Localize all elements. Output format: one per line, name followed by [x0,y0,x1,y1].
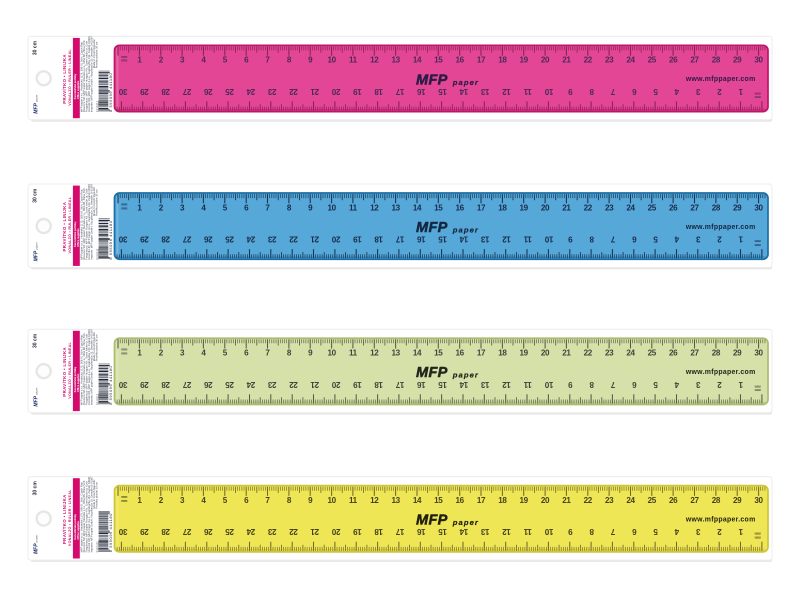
svg-text:20: 20 [331,380,340,389]
svg-text:30: 30 [118,87,127,96]
svg-text:VONALZÓ • RULER • LINEAL: VONALZÓ • RULER • LINEAL [67,196,72,253]
svg-text:27: 27 [690,56,699,65]
svg-text:30 cm: 30 cm [32,40,38,55]
svg-text:mm: mm [121,59,127,63]
svg-text:11: 11 [523,235,532,244]
svg-text:www.mfppaper.com: www.mfppaper.com [685,224,756,231]
svg-text:22: 22 [289,87,298,96]
svg-text:28: 28 [161,87,170,96]
svg-text:23: 23 [605,496,614,505]
svg-text:8 595096 441180: 8 595096 441180 [108,513,113,552]
svg-text:23: 23 [605,349,614,358]
svg-text:26: 26 [669,349,678,358]
svg-text:23: 23 [267,380,276,389]
svg-text:26: 26 [204,527,213,536]
svg-text:18: 18 [374,527,383,536]
svg-text:13: 13 [391,203,400,212]
svg-text:22: 22 [584,349,593,358]
svg-text:27: 27 [182,380,191,389]
svg-text:28: 28 [161,527,170,536]
svg-text:17: 17 [395,235,404,244]
svg-text:12: 12 [370,349,379,358]
svg-text:21: 21 [562,496,571,505]
svg-text:mm: mm [755,532,761,536]
svg-text:Office supplies: Office supplies [76,520,80,539]
svg-text:24: 24 [626,349,635,358]
svg-text:24: 24 [246,380,255,389]
svg-text:22: 22 [584,56,593,65]
svg-text:12: 12 [370,203,379,212]
svg-text:PRAVÍTKO • LINIJKA: PRAVÍTKO • LINIJKA [62,347,67,397]
svg-text:24: 24 [626,496,635,505]
svg-text:17: 17 [395,87,404,96]
svg-text:19: 19 [520,203,529,212]
svg-text:16: 16 [456,496,465,505]
svg-text:14: 14 [413,349,422,358]
svg-text:29: 29 [733,56,742,65]
svg-text:26: 26 [204,235,213,244]
svg-text:www.mfppaper.com: www.mfppaper.com [685,369,756,376]
svg-text:16: 16 [456,349,465,358]
svg-text:19: 19 [353,87,362,96]
svg-text:mm: mm [755,95,761,99]
svg-text:26: 26 [204,87,213,96]
svg-text:18: 18 [374,87,383,96]
svg-text:Pravítko ploché 30 cm: Pravítko ploché 30 cm [95,189,99,216]
svg-text:14: 14 [413,496,422,505]
svg-text:30: 30 [754,496,763,505]
svg-text:10: 10 [544,87,553,96]
svg-text:30 cm: 30 cm [32,333,38,348]
svg-text:16: 16 [417,235,426,244]
svg-text:24: 24 [246,235,255,244]
svg-text:16: 16 [417,87,426,96]
svg-text:mm: mm [121,352,127,356]
svg-text:Office supplies: Office supplies [76,373,80,392]
svg-text:18: 18 [498,56,507,65]
svg-text:18: 18 [498,349,507,358]
svg-text:15: 15 [438,527,447,536]
svg-text:25: 25 [225,235,234,244]
svg-text:mm: mm [755,388,761,392]
svg-text:25: 25 [225,380,234,389]
svg-text:19: 19 [520,349,529,358]
svg-text:20: 20 [541,56,550,65]
svg-text:13: 13 [480,527,489,536]
svg-text:mm: mm [121,499,127,503]
svg-text:paper: paper [452,78,479,87]
svg-text:29: 29 [733,349,742,358]
svg-text:23: 23 [267,527,276,536]
svg-text:17: 17 [395,380,404,389]
svg-text:12: 12 [502,87,511,96]
svg-text:25: 25 [648,203,657,212]
svg-text:10: 10 [327,349,336,358]
svg-text:13: 13 [391,349,400,358]
svg-text:mm: mm [121,206,127,210]
svg-text:8 595096 441180: 8 595096 441180 [108,220,113,259]
svg-text:19: 19 [520,496,529,505]
svg-text:PRAVÍTKO • LINIJKA: PRAVÍTKO • LINIJKA [62,494,67,544]
svg-text:17: 17 [477,203,486,212]
svg-text:10: 10 [544,380,553,389]
svg-text:16: 16 [456,203,465,212]
svg-text:24: 24 [246,87,255,96]
svg-text:10: 10 [327,203,336,212]
svg-text:Pravítko ploché 30 cm: Pravítko ploché 30 cm [95,41,99,68]
svg-text:30: 30 [754,56,763,65]
svg-text:22: 22 [584,496,593,505]
svg-text:14: 14 [459,380,468,389]
svg-text:30 cm: 30 cm [32,188,38,203]
svg-text:29: 29 [733,203,742,212]
svg-text:28: 28 [161,235,170,244]
svg-text:29: 29 [140,87,149,96]
svg-text:8 595096 441180: 8 595096 441180 [108,73,113,112]
svg-text:27: 27 [690,496,699,505]
svg-text:19: 19 [353,380,362,389]
svg-text:29: 29 [733,496,742,505]
svg-text:21: 21 [310,235,319,244]
svg-text:12: 12 [370,56,379,65]
svg-text:30: 30 [754,203,763,212]
svg-text:11: 11 [523,87,532,96]
svg-text:25: 25 [648,56,657,65]
svg-text:VONALZÓ • RULER • LINEAL: VONALZÓ • RULER • LINEAL [67,341,72,398]
svg-text:27: 27 [182,87,191,96]
svg-text:25: 25 [225,87,234,96]
svg-text:Office supplies: Office supplies [76,228,80,247]
svg-text:10: 10 [327,496,336,505]
svg-text:Pravítko ploché 30 cm: Pravítko ploché 30 cm [95,481,99,508]
svg-text:paper: paper [452,518,479,527]
svg-text:19: 19 [353,235,362,244]
svg-text:27: 27 [182,235,191,244]
svg-text:16: 16 [456,56,465,65]
svg-text:13: 13 [480,87,489,96]
svg-text:21: 21 [310,527,319,536]
svg-text:15: 15 [434,349,443,358]
svg-text:paper: paper [452,226,479,235]
svg-text:23: 23 [605,203,614,212]
svg-text:15: 15 [434,56,443,65]
svg-text:24: 24 [246,527,255,536]
svg-text:MFP: MFP [416,72,448,88]
svg-text:21: 21 [310,87,319,96]
svg-text:16: 16 [417,527,426,536]
svg-text:10: 10 [544,235,553,244]
svg-text:20: 20 [541,496,550,505]
svg-text:16: 16 [417,380,426,389]
svg-text:30: 30 [118,527,127,536]
svg-text:13: 13 [391,56,400,65]
svg-text:15: 15 [438,87,447,96]
svg-text:24: 24 [626,56,635,65]
svg-text:21: 21 [562,203,571,212]
svg-text:25: 25 [648,349,657,358]
svg-text:Pravítko ploché 30 cm: Pravítko ploché 30 cm [95,334,99,361]
svg-text:15: 15 [434,496,443,505]
svg-text:Office supplies: Office supplies [76,80,80,99]
svg-text:28: 28 [712,349,721,358]
svg-text:mm: mm [755,384,761,388]
svg-text:17: 17 [477,496,486,505]
svg-text:23: 23 [267,87,276,96]
svg-text:MFP: MFP [416,365,448,381]
svg-text:26: 26 [669,203,678,212]
svg-text:MFP: MFP [416,220,448,236]
svg-text:27: 27 [690,349,699,358]
svg-text:29: 29 [140,527,149,536]
svg-text:23: 23 [267,235,276,244]
svg-text:14: 14 [413,56,422,65]
svg-text:11: 11 [523,380,532,389]
svg-text:13: 13 [391,496,400,505]
svg-text:25: 25 [225,527,234,536]
svg-text:11: 11 [349,496,358,505]
svg-text:PRAVÍTKO • LINIJKA: PRAVÍTKO • LINIJKA [62,201,67,251]
svg-text:28: 28 [161,380,170,389]
svg-text:22: 22 [289,235,298,244]
svg-text:18: 18 [374,380,383,389]
svg-text:VONALZÓ • RULER • LINEAL: VONALZÓ • RULER • LINEAL [67,49,72,106]
svg-text:29: 29 [140,235,149,244]
svg-text:25: 25 [648,496,657,505]
svg-text:19: 19 [520,56,529,65]
svg-text:27: 27 [690,203,699,212]
svg-text:14: 14 [459,527,468,536]
svg-text:15: 15 [438,235,447,244]
svg-text:30: 30 [118,235,127,244]
svg-text:20: 20 [331,87,340,96]
svg-text:10: 10 [544,527,553,536]
svg-text:mm: mm [755,243,761,247]
svg-text:28: 28 [712,496,721,505]
svg-text:11: 11 [349,349,358,358]
svg-text:mm: mm [755,91,761,95]
svg-text:22: 22 [584,203,593,212]
svg-text:26: 26 [669,56,678,65]
svg-text:14: 14 [459,235,468,244]
svg-text:28: 28 [712,56,721,65]
svg-text:20: 20 [541,349,550,358]
svg-text:24: 24 [626,203,635,212]
svg-text:29: 29 [140,380,149,389]
svg-text:PRAVÍTKO • LINIJKA: PRAVÍTKO • LINIJKA [62,54,67,104]
svg-text:30: 30 [754,349,763,358]
svg-text:20: 20 [331,235,340,244]
svg-text:14: 14 [413,203,422,212]
svg-text:11: 11 [523,527,532,536]
svg-text:17: 17 [395,527,404,536]
svg-text:15: 15 [438,380,447,389]
svg-text:12: 12 [502,380,511,389]
svg-text:21: 21 [562,349,571,358]
svg-text:21: 21 [562,56,571,65]
svg-text:30: 30 [118,380,127,389]
svg-text:www.mfppaper.com: www.mfppaper.com [685,517,756,524]
svg-text:26: 26 [204,380,213,389]
svg-text:18: 18 [374,235,383,244]
svg-text:22: 22 [289,527,298,536]
svg-text:12: 12 [370,496,379,505]
svg-text:18: 18 [498,203,507,212]
svg-text:18: 18 [498,496,507,505]
svg-text:11: 11 [349,203,358,212]
svg-text:13: 13 [480,235,489,244]
svg-text:8 595096 441180: 8 595096 441180 [108,365,113,404]
svg-text:21: 21 [310,380,319,389]
svg-text:20: 20 [331,527,340,536]
svg-text:www.mfppaper.com: www.mfppaper.com [685,76,756,83]
svg-text:MFP: MFP [416,513,448,529]
svg-text:22: 22 [289,380,298,389]
svg-text:17: 17 [477,56,486,65]
svg-text:19: 19 [353,527,362,536]
svg-text:12: 12 [502,235,511,244]
svg-text:12: 12 [502,527,511,536]
svg-text:10: 10 [327,56,336,65]
svg-text:30 cm: 30 cm [32,481,38,496]
svg-text:27: 27 [182,527,191,536]
svg-text:VONALZÓ • RULER • LINEAL: VONALZÓ • RULER • LINEAL [67,489,72,546]
svg-text:17: 17 [477,349,486,358]
svg-text:mm: mm [755,239,761,243]
svg-text:28: 28 [712,203,721,212]
svg-text:paper: paper [452,371,479,380]
svg-text:11: 11 [349,56,358,65]
svg-text:15: 15 [434,203,443,212]
svg-text:14: 14 [459,87,468,96]
svg-text:13: 13 [480,380,489,389]
svg-text:23: 23 [605,56,614,65]
svg-text:26: 26 [669,496,678,505]
svg-text:mm: mm [755,535,761,539]
svg-text:20: 20 [541,203,550,212]
